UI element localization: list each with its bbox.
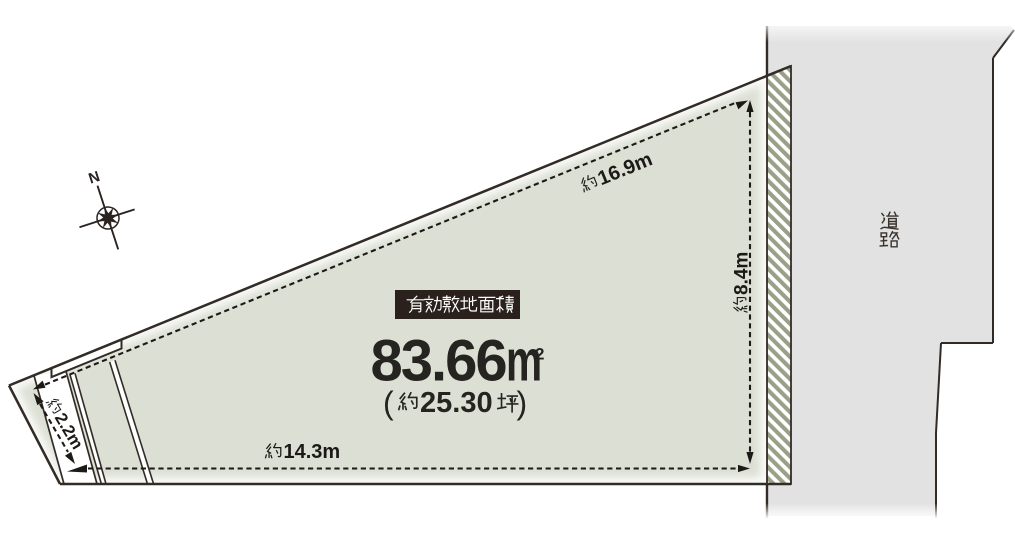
svg-text:(: ( [383,385,394,421]
svg-text:83.66: 83.66 [371,329,507,394]
svg-text:25.30: 25.30 [420,387,493,419]
svg-text:): ) [517,385,528,421]
svg-text:8.4m: 8.4m [732,252,753,295]
svg-text:2: 2 [535,345,544,364]
svg-text:14.3m: 14.3m [284,441,341,463]
